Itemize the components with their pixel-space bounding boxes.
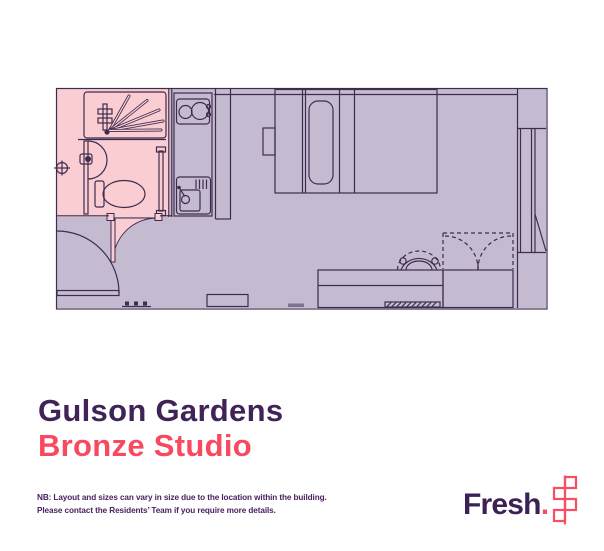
disclaimer-line-1: NB: Layout and sizes can vary in size du… bbox=[37, 492, 327, 505]
property-name: Gulson Gardens bbox=[38, 394, 283, 428]
disclaimer: NB: Layout and sizes can vary in size du… bbox=[37, 492, 327, 517]
brand-period: . bbox=[541, 488, 549, 521]
floor-vent bbox=[288, 304, 304, 308]
fresh-squares-icon bbox=[552, 475, 578, 525]
title-block: Gulson Gardens Bronze Studio bbox=[38, 394, 283, 463]
flyer-page: Gulson Gardens Bronze Studio NB: Layout … bbox=[0, 0, 604, 551]
brand-wordmark: Fresh. bbox=[463, 488, 548, 522]
floor-plan bbox=[0, 0, 604, 551]
unit-type: Bronze Studio bbox=[38, 429, 283, 463]
brand-text: Fresh bbox=[463, 488, 541, 521]
disclaimer-line-2: Please contact the Residents’ Team if yo… bbox=[37, 505, 327, 518]
